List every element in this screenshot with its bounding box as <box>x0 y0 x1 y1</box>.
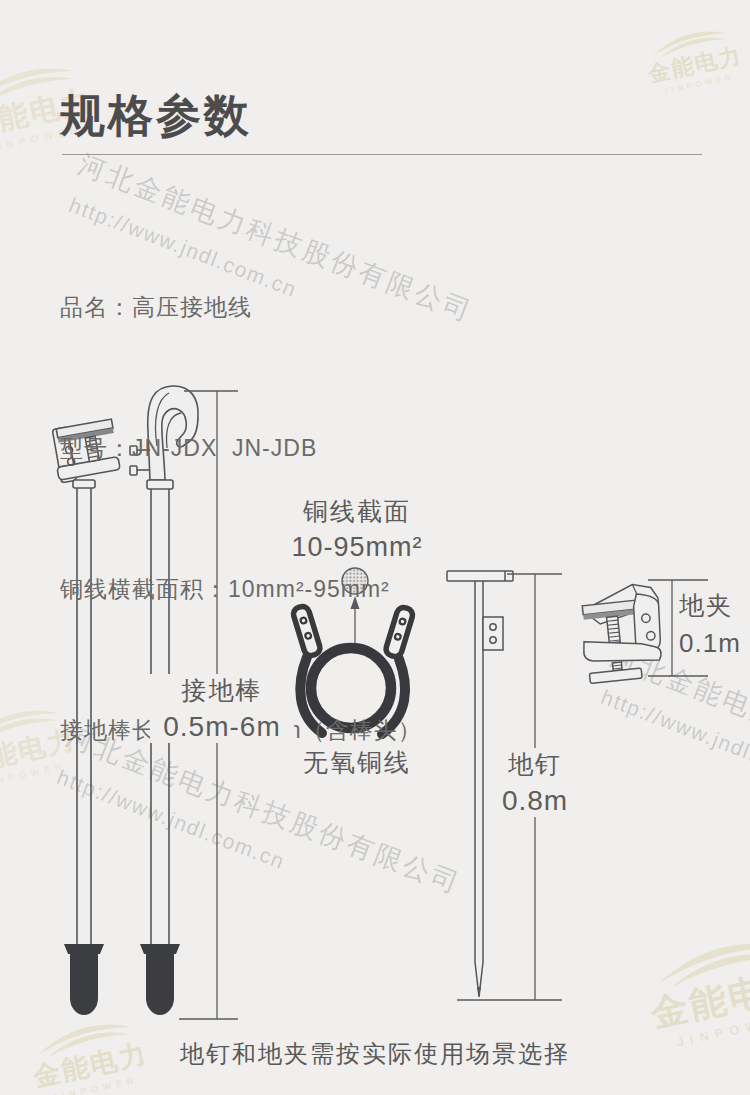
rod-rubber-grips <box>64 944 180 1015</box>
wire-label: 无氧铜线 <box>277 746 437 779</box>
rod-dimension-label: 接地棒 0.5m-6m <box>150 674 294 743</box>
copper-section-name-label: 铜线截面 <box>277 495 437 528</box>
nail-name-label: 地钉 <box>495 748 575 781</box>
footnote: 地钉和地夹需按实际使用场景选择 <box>0 1038 750 1070</box>
clamp-length-value: 0.1m <box>679 628 741 659</box>
rod-length-value: 0.5m-6m <box>150 711 294 743</box>
ground-clamp-illustration <box>577 582 666 684</box>
product-spec-image: 河北金能电力科技股份有限公司 http://www.jndl.com.cn 河北… <box>0 0 750 1095</box>
copper-section-area-value: 10-95mm² <box>277 532 437 563</box>
spec-line-copper-area: 铜线横截面积：10mm²-95mm² <box>60 566 422 613</box>
clamp-dimension-label: 地夹 0.1m <box>679 589 741 659</box>
clamp-name-label: 地夹 <box>679 589 741 622</box>
wire-name-label: 无氧铜线 <box>277 746 437 779</box>
rod-name-label: 接地棒 <box>150 674 294 707</box>
title-divider <box>62 154 702 155</box>
nail-dimension-label: 地钉 0.8m <box>495 748 575 817</box>
spec-line-model: 型号：JN-JDX JN-JDB <box>60 425 422 472</box>
copper-section-label: 铜线截面 10-95mm² <box>277 495 437 563</box>
spec-line-product-name: 品名：高压接地线 <box>60 284 422 331</box>
nail-length-value: 0.8m <box>495 785 575 817</box>
page-title: 规格参数 <box>60 86 252 146</box>
